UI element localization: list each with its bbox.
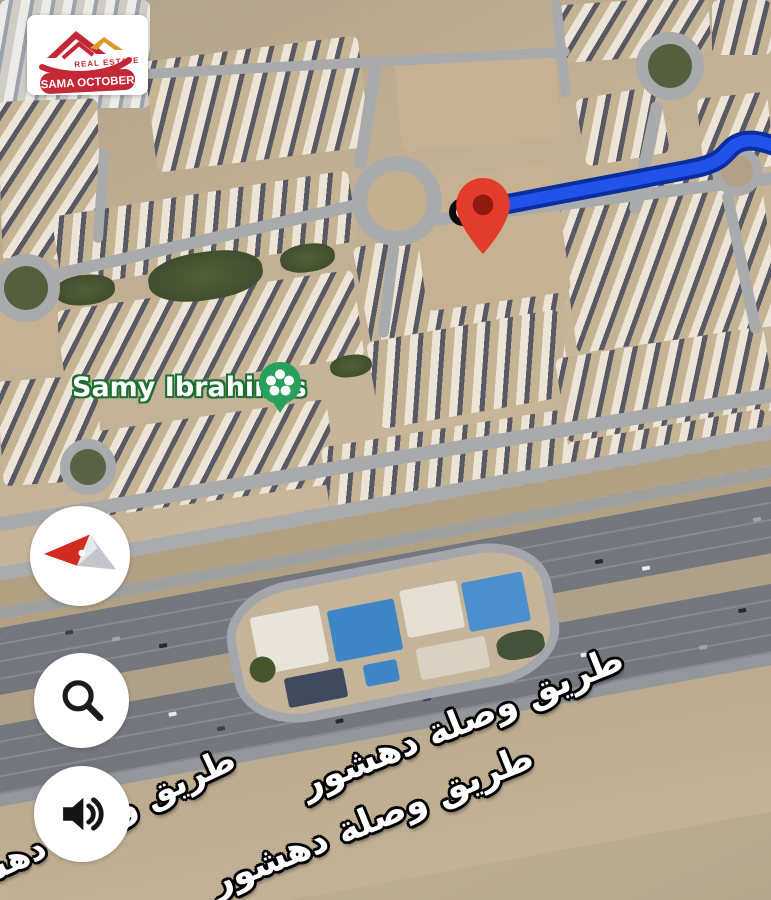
map-vehicle <box>168 711 177 716</box>
compass-button[interactable] <box>30 506 130 606</box>
map-vehicle <box>335 718 344 723</box>
map-vehicle <box>738 608 747 613</box>
map-vehicle <box>112 636 121 641</box>
map-vehicle <box>65 630 74 635</box>
map-view: طريق وصلة دهشور طريق وصلة دهشور طريق وصل… <box>0 0 771 900</box>
compass-needle-icon <box>41 531 119 581</box>
audio-button[interactable] <box>34 766 130 862</box>
map-roundabout <box>352 156 442 246</box>
map-vehicle <box>642 566 651 571</box>
search-button[interactable] <box>34 653 129 748</box>
destination-pin-icon[interactable] <box>456 178 510 254</box>
speaker-icon <box>55 787 109 841</box>
garden-flower-pin-icon[interactable] <box>256 360 304 416</box>
brand-logo: REAL ESTATE SAMA OCTOBER <box>27 15 148 95</box>
map-vehicle <box>595 559 604 564</box>
map-vehicle <box>753 517 762 522</box>
map-vehicle <box>159 643 168 648</box>
map-block <box>144 35 371 172</box>
map-roundabout <box>636 32 704 100</box>
map-vehicle <box>217 726 226 731</box>
map-roundabout <box>712 146 762 196</box>
logo-tagline: REAL ESTATE <box>74 56 140 70</box>
map-block <box>712 0 771 55</box>
map-vehicle <box>699 645 708 650</box>
map-roundabout <box>60 439 116 495</box>
search-icon <box>56 675 108 727</box>
